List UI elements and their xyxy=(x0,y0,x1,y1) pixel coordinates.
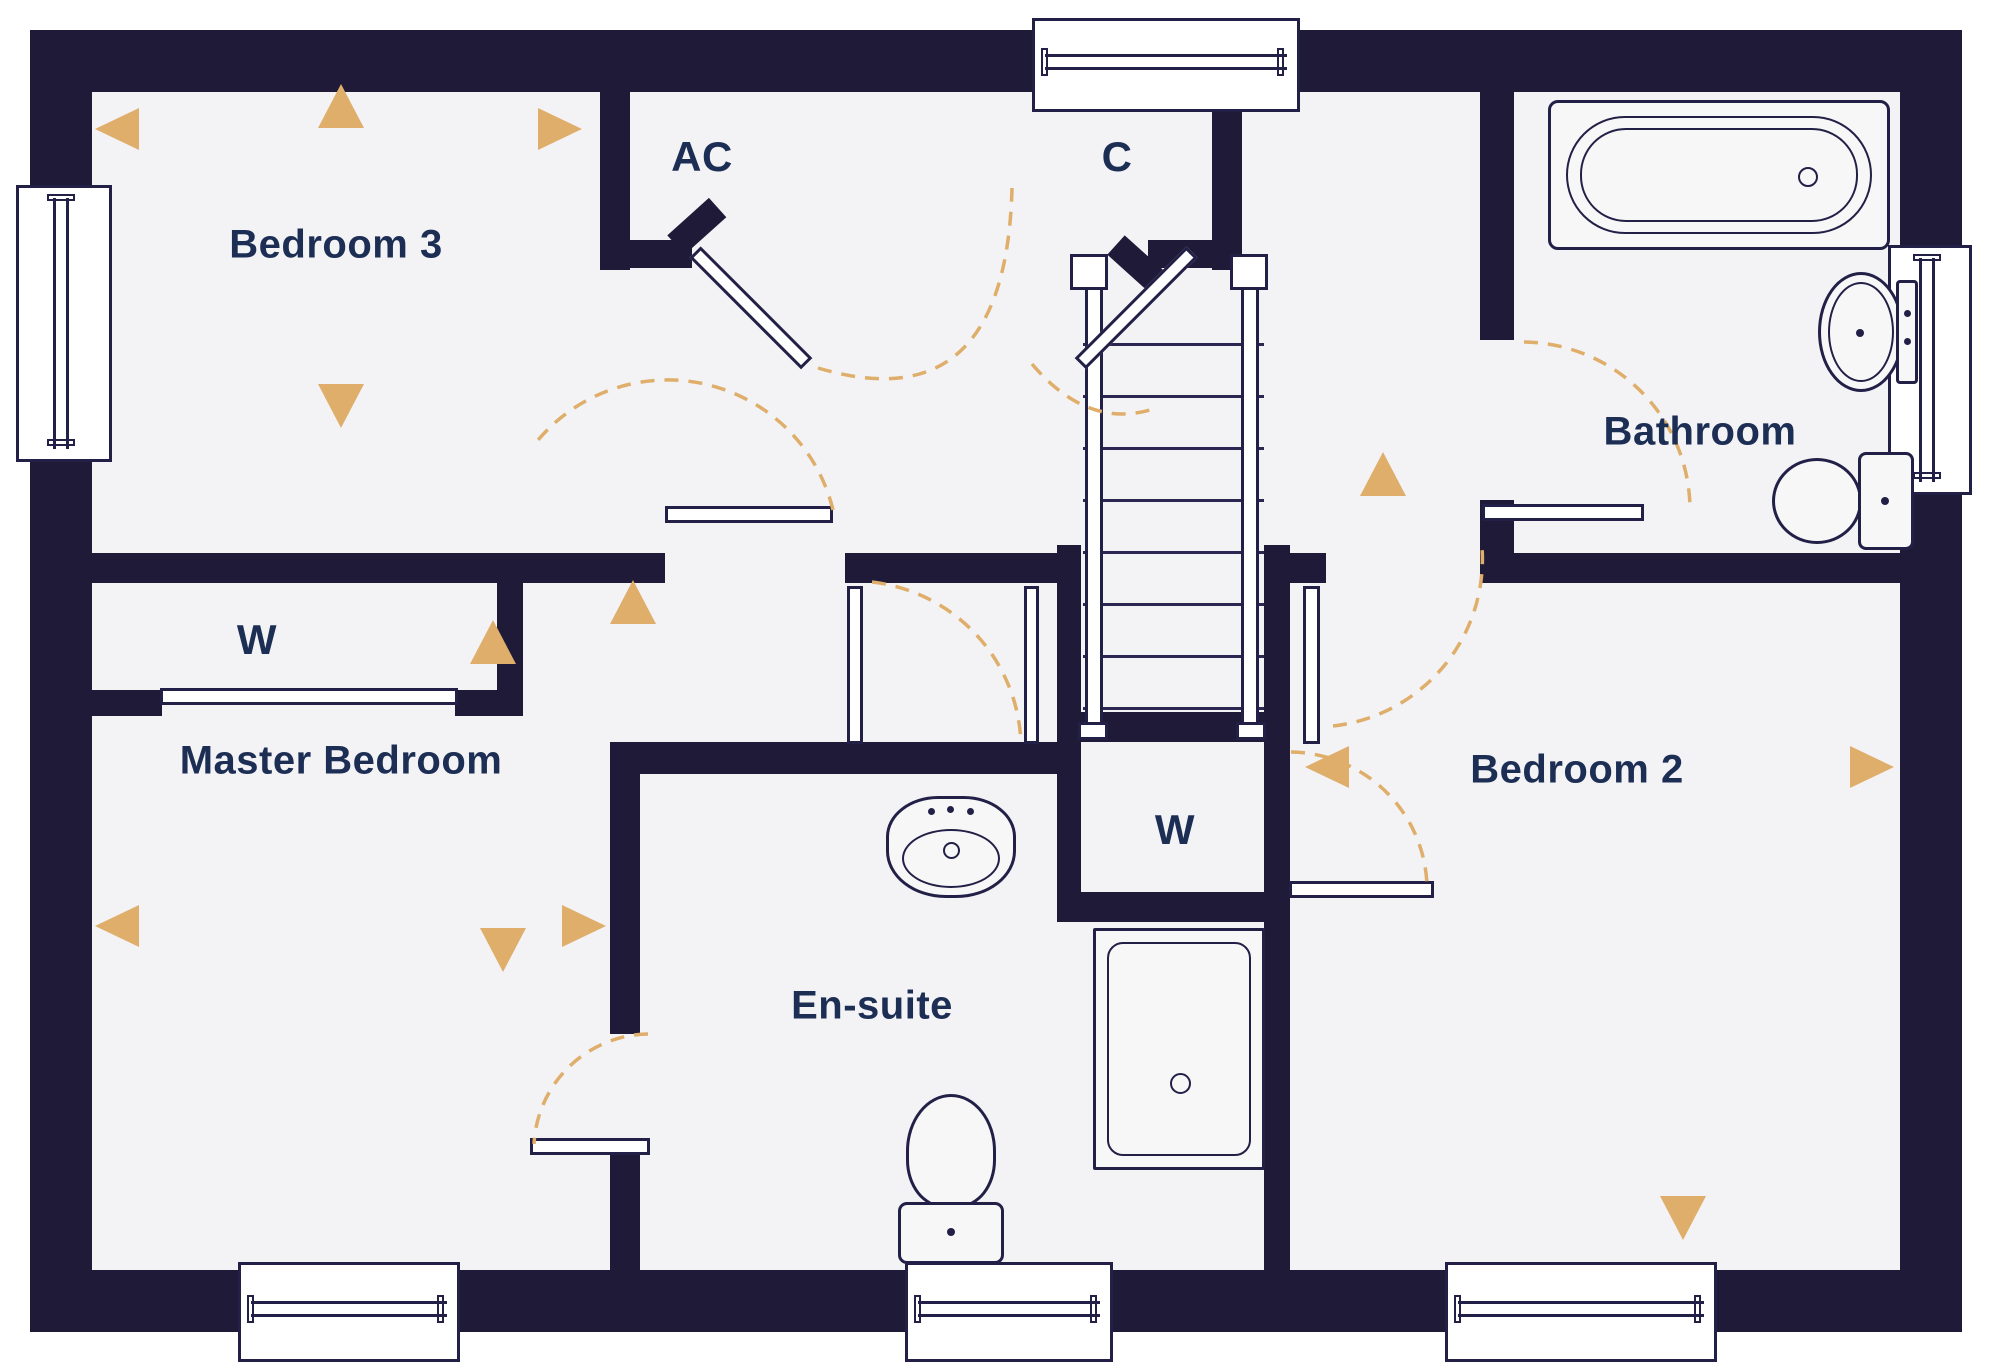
tub-drain xyxy=(1798,167,1818,187)
dimension-arrow-left xyxy=(95,108,139,150)
shower-tray-inner xyxy=(1107,942,1251,1156)
shower-tray-icon xyxy=(1093,928,1265,1170)
stair-tread xyxy=(1083,603,1264,606)
room-label-bedroom-3: Bedroom 3 xyxy=(229,223,442,268)
wall xyxy=(845,553,1081,583)
ensuite-toilet-icon xyxy=(898,1094,1004,1264)
ensuite-door-leaf xyxy=(530,1138,650,1155)
wall xyxy=(1148,240,1242,268)
stair-tread xyxy=(1083,395,1264,398)
toilet-bowl xyxy=(906,1094,996,1208)
wall xyxy=(610,1148,640,1270)
landing-window xyxy=(1032,18,1300,112)
dimension-arrow-up xyxy=(318,84,364,128)
wall xyxy=(1480,553,1900,583)
window-glazing xyxy=(53,198,69,449)
stair-rail-cap xyxy=(1236,722,1266,740)
toilet-button xyxy=(947,1228,955,1236)
stair-tread xyxy=(1083,655,1264,658)
window-glazing xyxy=(918,1301,1100,1317)
wall xyxy=(92,553,665,583)
stair-rail xyxy=(1241,270,1259,738)
wall xyxy=(92,690,162,716)
stair-tread xyxy=(1083,447,1264,450)
window-glazing xyxy=(1919,258,1935,482)
wall xyxy=(30,30,1962,92)
dimension-arrow-up xyxy=(610,580,656,624)
bedroom3-window xyxy=(16,185,112,462)
window-glazing xyxy=(1458,1301,1704,1317)
stair-newel-post xyxy=(1070,254,1108,290)
stair-tread xyxy=(1083,499,1264,502)
ensuite-sink-icon xyxy=(886,796,1016,898)
dimension-arrow-left xyxy=(1305,746,1349,788)
bathroom-toilet-icon xyxy=(1772,452,1914,550)
wall xyxy=(455,690,523,716)
dimension-arrow-down xyxy=(480,928,526,972)
room-label-bedroom-2: Bedroom 2 xyxy=(1470,748,1683,793)
wall xyxy=(1900,30,1962,1332)
toilet-bowl xyxy=(1772,458,1862,544)
wardrobe-bed2-door-leaf xyxy=(1289,881,1434,898)
sink-tap xyxy=(928,808,935,815)
bedroom3-door-leaf xyxy=(665,506,833,523)
room-label-wardrobe-bed2: W xyxy=(1155,806,1195,854)
sink-counter xyxy=(1896,280,1918,384)
dimension-arrow-down xyxy=(318,384,364,428)
wall xyxy=(1264,545,1290,1270)
wardrobe-master-slider xyxy=(160,688,458,705)
stair-newel-post xyxy=(1230,254,1268,290)
landing-jamb xyxy=(1024,586,1039,744)
wall xyxy=(610,742,640,1034)
dimension-arrow-up xyxy=(470,620,516,664)
bedroom2-window xyxy=(1445,1262,1717,1362)
wall xyxy=(1480,92,1514,340)
ensuite-window xyxy=(905,1262,1113,1362)
stair-tread xyxy=(1083,707,1264,710)
dimension-arrow-right xyxy=(538,108,582,150)
sink-tap xyxy=(967,808,974,815)
sink-drain xyxy=(943,842,960,859)
stair-rail-cap xyxy=(1078,722,1108,740)
dimension-arrow-right xyxy=(562,905,606,947)
stair-tread xyxy=(1083,551,1264,554)
dimension-arrow-right xyxy=(1850,746,1894,788)
master-window xyxy=(238,1262,460,1362)
room-label-wardrobe-master: W xyxy=(237,616,277,664)
room-label-airing-cupboard: AC xyxy=(671,133,733,181)
window-glazing xyxy=(1045,54,1287,70)
wall xyxy=(1057,892,1289,922)
bathroom-door-leaf xyxy=(1482,504,1644,521)
wall xyxy=(610,742,1081,774)
room-label-en-suite: En-suite xyxy=(791,984,953,1029)
bedroom2-door-leaf xyxy=(1303,586,1320,744)
room-label-master-bedroom: Master Bedroom xyxy=(180,739,503,784)
dimension-arrow-down xyxy=(1660,1196,1706,1240)
floor-plan: Bedroom 3ACCBathroomWMaster BedroomEn-su… xyxy=(0,0,2000,1369)
bathtub-icon xyxy=(1548,100,1890,250)
room-label-cupboard: C xyxy=(1102,133,1133,181)
master-door-leaf xyxy=(847,586,863,744)
window-glazing xyxy=(251,1301,447,1317)
bathroom-sink-icon xyxy=(1818,268,1918,396)
room-label-bathroom: Bathroom xyxy=(1604,410,1797,455)
dimension-arrow-left xyxy=(95,905,139,947)
dimension-arrow-up xyxy=(1360,452,1406,496)
toilet-button xyxy=(1881,497,1889,505)
